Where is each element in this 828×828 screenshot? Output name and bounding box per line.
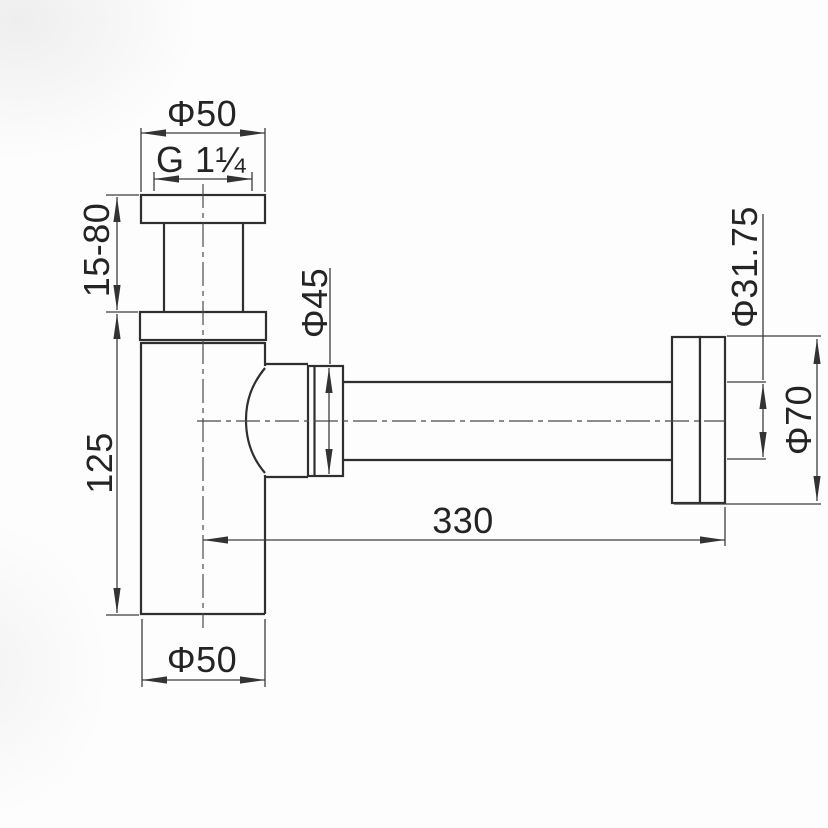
label-escutcheon-diameter: Φ70 <box>778 385 819 455</box>
center-lines <box>197 184 725 628</box>
bottle-trap-dimension-drawing: Φ50 G 1¼ 15-80 125 Φ45 Φ31.75 Φ70 330 Φ5… <box>0 0 828 828</box>
label-top-diameter: Φ50 <box>167 93 237 134</box>
trap-outline <box>140 195 725 614</box>
label-nut-diameter: Φ45 <box>294 268 335 338</box>
label-pipe-diameter: Φ31.75 <box>724 206 765 328</box>
label-body-height: 125 <box>79 432 120 494</box>
drawing-canvas: Φ50 G 1¼ 15-80 125 Φ45 Φ31.75 Φ70 330 Φ5… <box>0 0 828 828</box>
label-pipe-length: 330 <box>432 500 494 541</box>
label-bottom-diameter: Φ50 <box>167 639 237 680</box>
wall-collar <box>700 337 725 503</box>
label-thread-size: G 1¼ <box>156 139 247 180</box>
label-inlet-adjust-range: 15-80 <box>76 203 117 298</box>
wall-escutcheon-plate <box>672 337 700 503</box>
